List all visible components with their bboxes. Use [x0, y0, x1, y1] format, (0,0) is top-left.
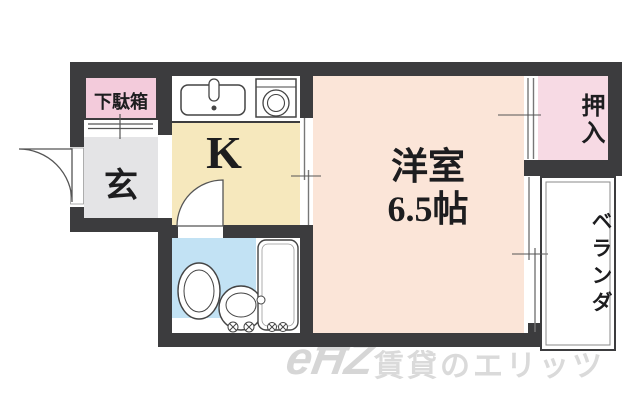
veranda-label: ベランダ [540, 184, 616, 344]
shoe-cabinet-lines-icon [88, 114, 153, 139]
bathroom-door-swing-icon [177, 180, 223, 226]
entrance-door-swing-icon [19, 149, 72, 202]
kitchen-sink-icon [181, 79, 245, 115]
toilet-icon [178, 263, 220, 319]
genkan-label: 玄 [84, 158, 158, 207]
wash-basin-icon [219, 286, 263, 332]
floorplan-canvas: eĦZ 賃貸のエリッツ [0, 0, 640, 416]
gas-stove-icon [256, 79, 296, 117]
bathtub-icon [257, 240, 298, 332]
closet-label: 押入 [538, 80, 608, 160]
western-room-size: 6.5帖 [323, 180, 533, 232]
shoe-cabinet-label: 下駄箱 [84, 88, 158, 114]
sliding-door-kitchen-room-icon [291, 118, 321, 225]
kitchen-label: K [160, 126, 288, 179]
